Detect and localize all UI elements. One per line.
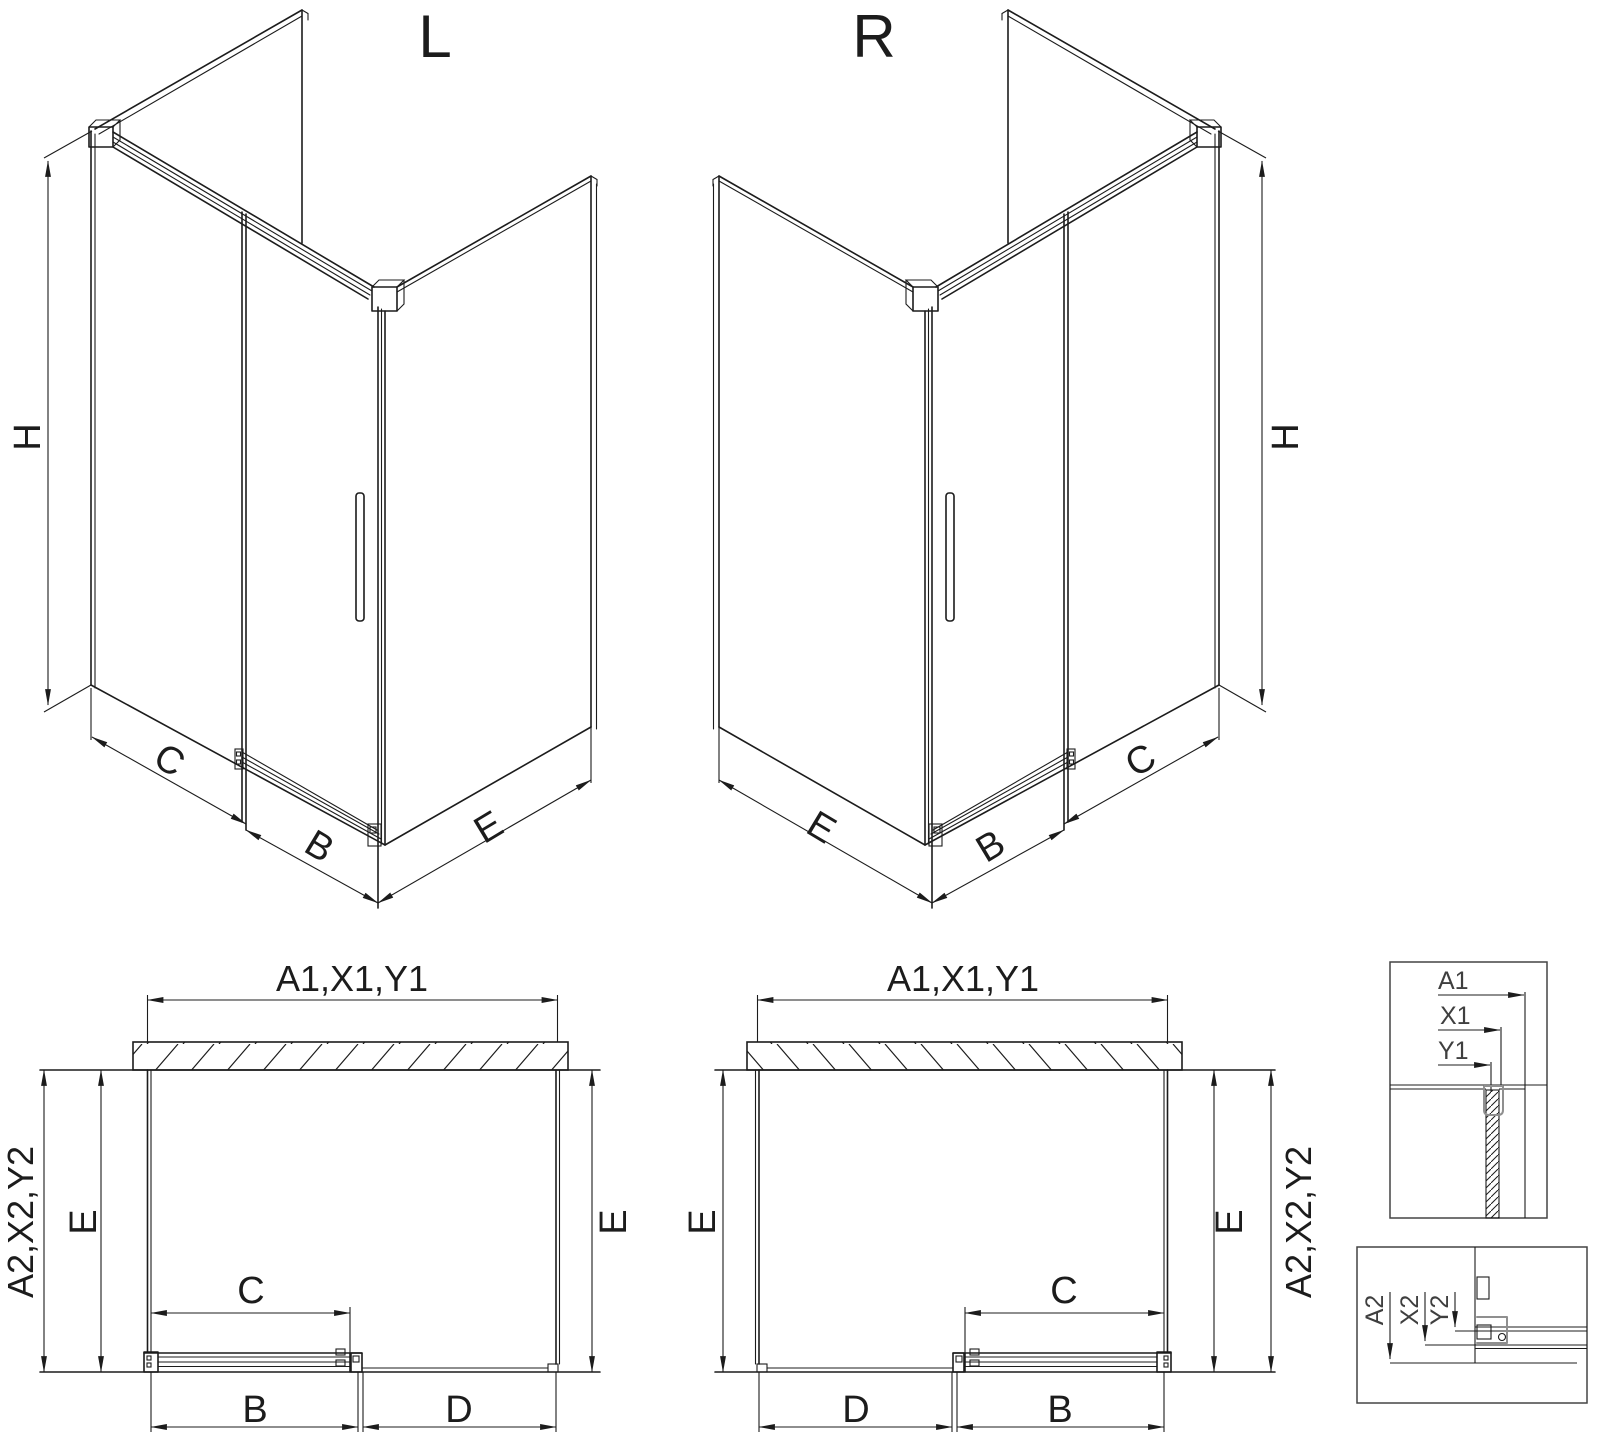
detail-x2-label: X2 [1396, 1295, 1424, 1326]
dim-depth-group-label: A2,X2,Y2 [1278, 1146, 1319, 1298]
dim-door-label: B [969, 822, 1012, 871]
iso-view-right [713, 10, 1266, 908]
dim-front-group-label: A1,X1,Y1 [276, 958, 428, 999]
drawing-canvas: L H C B E R H C B E A1,X1,Y1 A2,X2,Y2 E … [0, 0, 1600, 1438]
dim-door-label: B [1047, 1389, 1072, 1431]
technical-drawing-page: { "drawing": { "variants": { "left": "L"… [0, 0, 1600, 1438]
dim-fixed-label: D [842, 1389, 869, 1431]
detail-y1-label: Y1 [1438, 1037, 1469, 1065]
dim-depth-group-label: A2,X2,Y2 [0, 1146, 41, 1298]
labels-iso-right: R H C B E [799, 3, 1307, 871]
dim-opening-label: C [1118, 736, 1163, 786]
dim-side-label: E [682, 1209, 724, 1234]
detail-a2-label: A2 [1361, 1295, 1389, 1326]
detail-y2-label: Y2 [1426, 1295, 1454, 1326]
dim-side-label: E [799, 803, 842, 852]
dim-opening-label: C [237, 1270, 264, 1312]
detail-x1-label: X1 [1440, 1002, 1471, 1030]
dim-side-label: E [1209, 1209, 1251, 1234]
labels-plan-left: A1,X1,Y1 A2,X2,Y2 E E C B D [0, 958, 635, 1431]
plan-view-right [715, 995, 1275, 1432]
detail-box-top [1390, 962, 1547, 1218]
variant-left-label: L [418, 3, 451, 70]
dim-height-label: H [1265, 423, 1307, 450]
dim-height-label: H [7, 423, 49, 450]
dim-opening-label: C [147, 736, 192, 786]
detail-a1-label: A1 [1438, 967, 1469, 995]
detail-box-bottom [1357, 1247, 1587, 1403]
labels-iso-left: L H C B E [7, 3, 511, 871]
dim-opening-label: C [1050, 1270, 1077, 1312]
labels-plan-right: A1,X1,Y1 A2,X2,Y2 E E C B D [682, 958, 1319, 1431]
dim-front-group-label: A1,X1,Y1 [887, 958, 1039, 999]
dim-side-label: E [467, 803, 510, 852]
dim-side-label: E [63, 1209, 105, 1234]
glass-panel-section [1486, 1090, 1499, 1218]
dim-door-label: B [242, 1389, 267, 1431]
labels-detail-boxes: A1 X1 Y1 A2 X2 Y2 [1361, 967, 1471, 1325]
dim-side-label: E [593, 1209, 635, 1234]
dim-door-label: B [297, 822, 340, 871]
variant-right-label: R [852, 3, 895, 70]
plan-view-left [40, 995, 600, 1432]
iso-view-left [44, 10, 597, 908]
dim-fixed-label: D [445, 1389, 472, 1431]
